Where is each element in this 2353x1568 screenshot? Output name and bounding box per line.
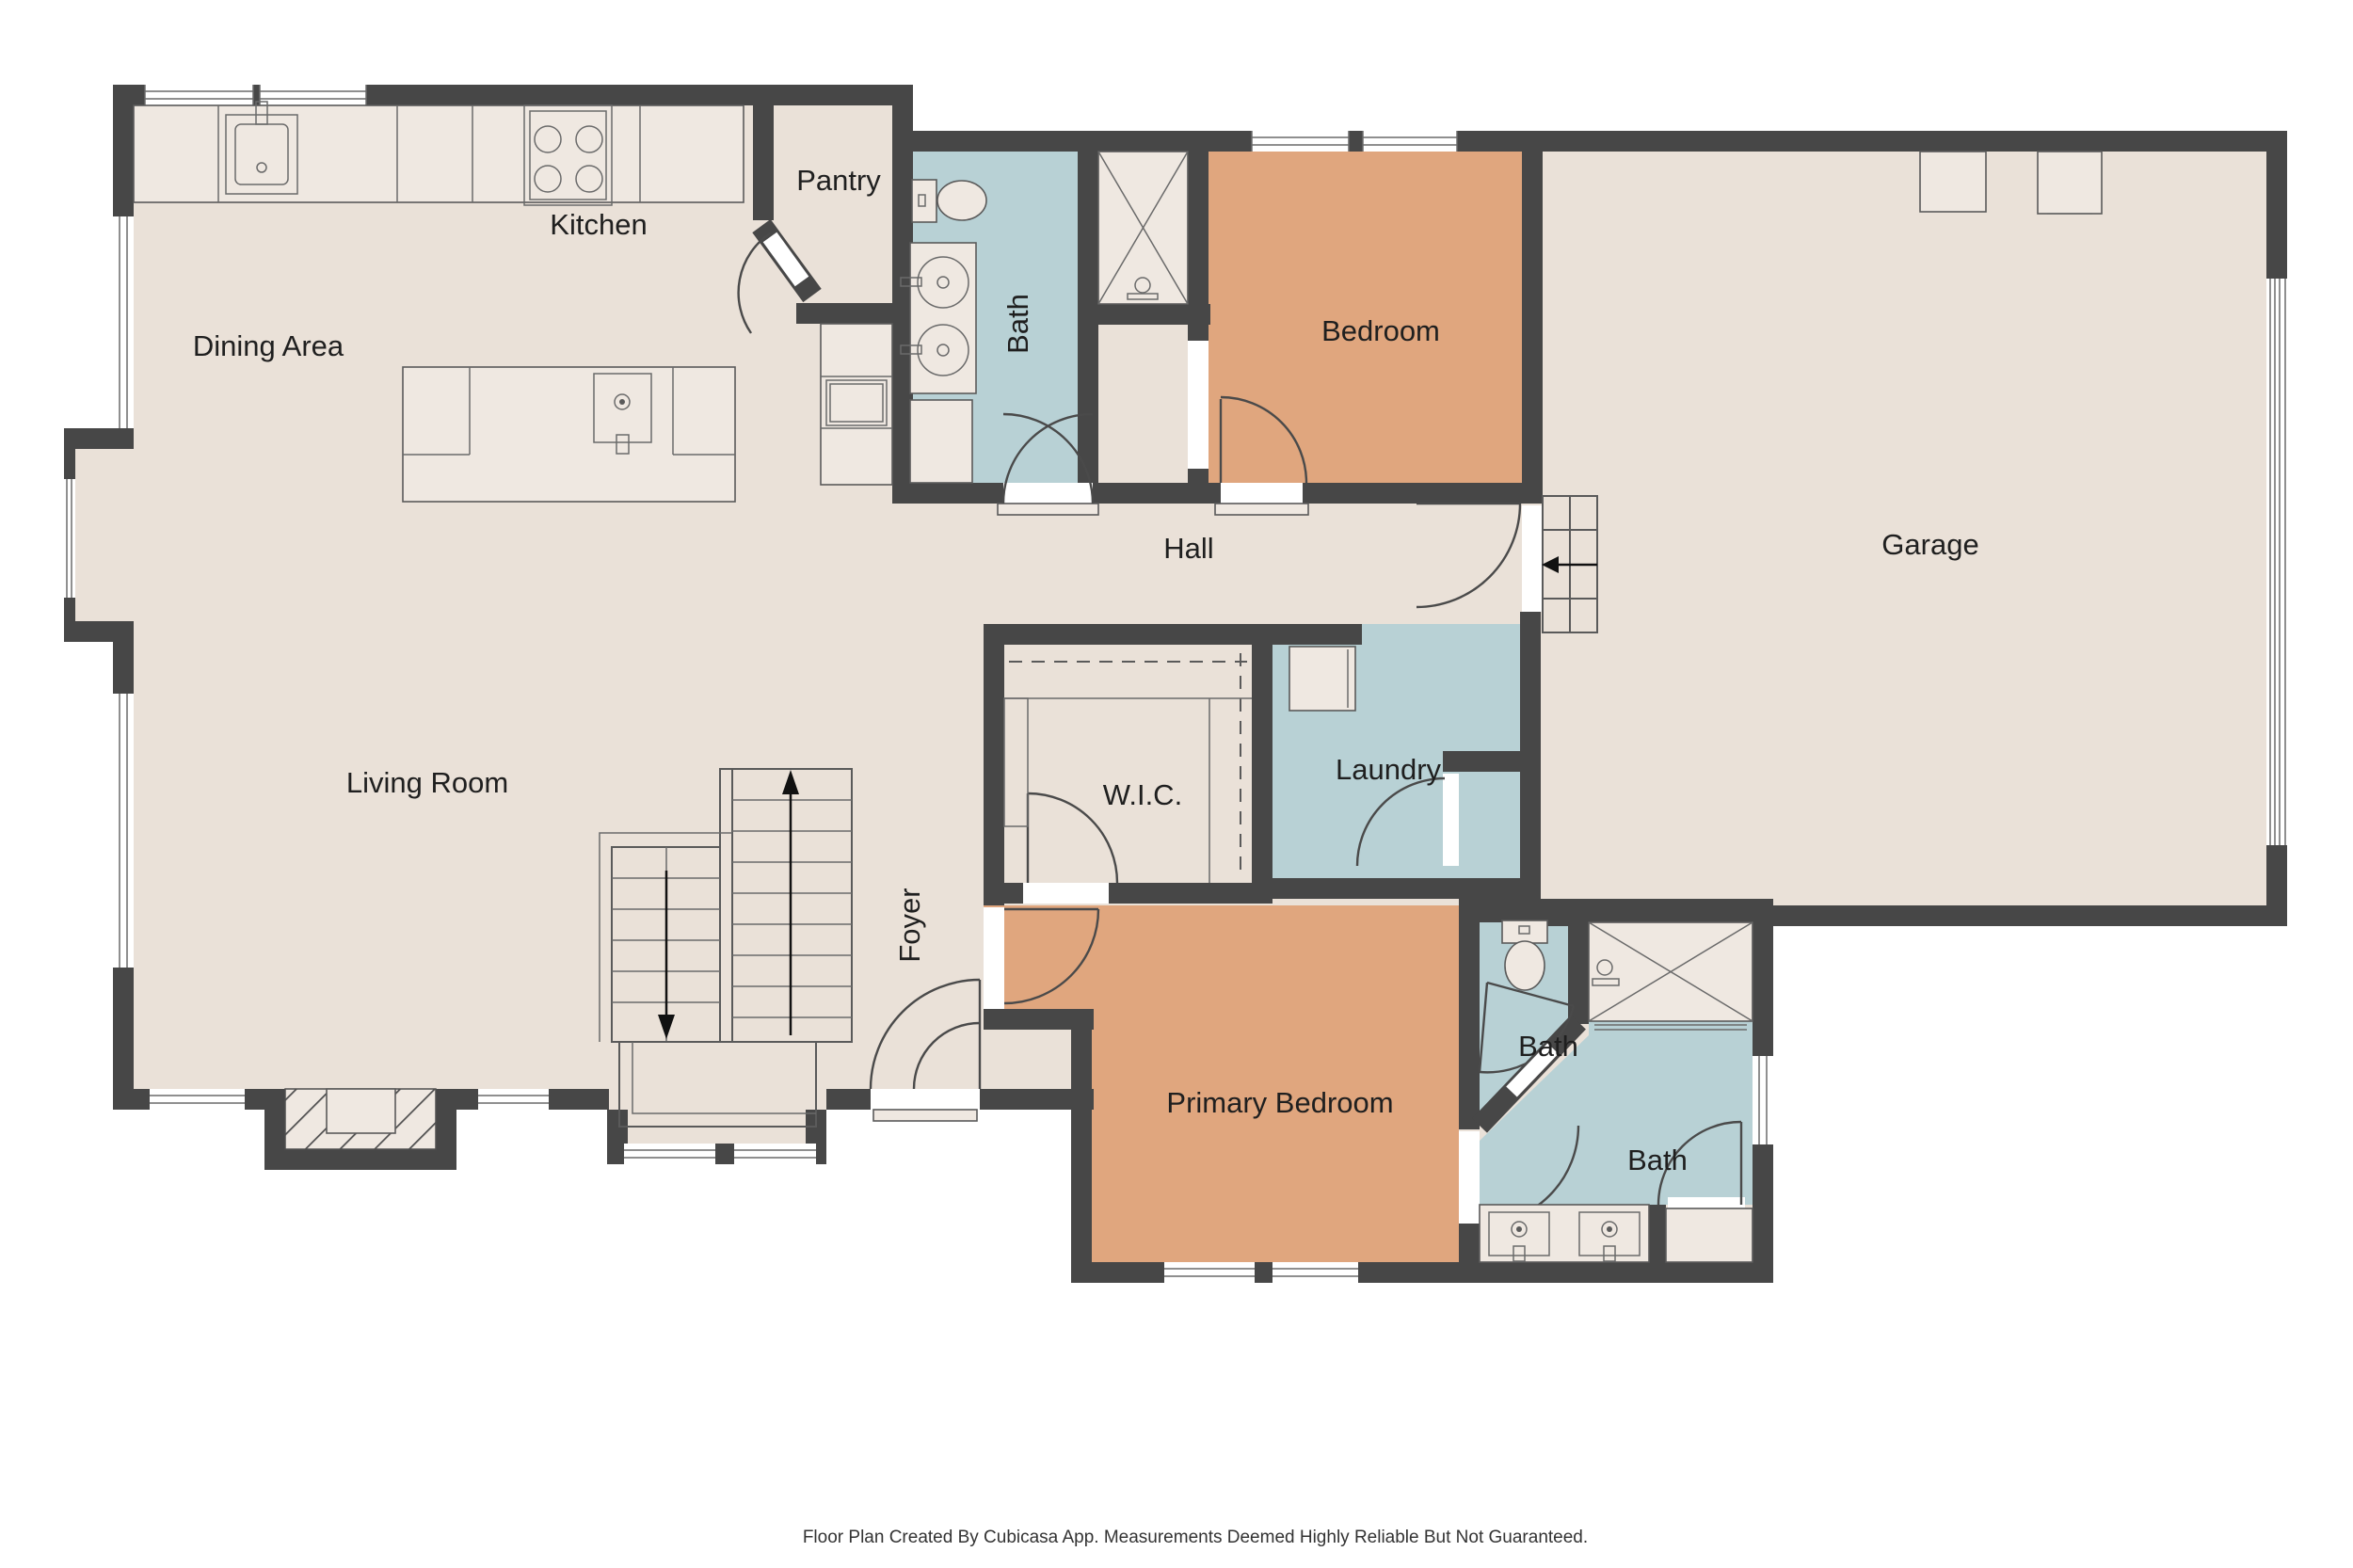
floorplan-canvas: Kitchen Dining Area Pantry Bath Bedroom … bbox=[0, 0, 2353, 1568]
door-threshold bbox=[1023, 883, 1109, 904]
washer-icon bbox=[1289, 647, 1355, 711]
door-threshold bbox=[1522, 505, 1543, 612]
room-label-hall: Hall bbox=[1163, 532, 1213, 565]
window bbox=[1753, 1056, 1773, 1144]
window bbox=[1164, 1262, 1255, 1283]
kitchen-island bbox=[403, 367, 735, 502]
room-label-bath-primary: Bath bbox=[1627, 1144, 1688, 1176]
wall-segment bbox=[1091, 483, 1223, 504]
wall-segment bbox=[816, 1144, 826, 1164]
kitchen-counter bbox=[134, 102, 744, 205]
wall-segment bbox=[1568, 922, 1589, 1024]
door-threshold bbox=[1459, 1131, 1480, 1224]
floorplan-page: Kitchen Dining Area Pantry Bath Bedroom … bbox=[0, 0, 2353, 1568]
room-label-garage: Garage bbox=[1881, 528, 1978, 561]
wall-segment bbox=[113, 1089, 150, 1110]
wall-segment bbox=[245, 1089, 266, 1110]
wall-segment bbox=[1443, 751, 1541, 772]
wall-segment bbox=[1459, 899, 1773, 922]
wall-segment bbox=[1252, 878, 1541, 899]
window bbox=[1252, 131, 1349, 152]
wall-segment bbox=[64, 449, 75, 479]
wall-segment bbox=[64, 621, 134, 642]
room-label-pantry: Pantry bbox=[796, 164, 881, 197]
wall-segment bbox=[984, 624, 1362, 645]
shower-icon bbox=[1589, 922, 1753, 1030]
wall-segment bbox=[549, 1089, 609, 1110]
wall-segment bbox=[455, 1089, 478, 1110]
wall-segment bbox=[1188, 152, 1209, 325]
door-threshold bbox=[1668, 1197, 1745, 1208]
wall-segment bbox=[1071, 1009, 1092, 1283]
vanity-double-sink bbox=[901, 243, 976, 393]
wall-segment bbox=[1255, 1262, 1273, 1283]
wall-segment bbox=[2266, 845, 2287, 926]
toilet-icon bbox=[1502, 920, 1547, 990]
door-step bbox=[873, 1110, 977, 1121]
wall-segment bbox=[753, 105, 774, 220]
window bbox=[624, 1144, 715, 1164]
garage-appliance bbox=[1920, 152, 1986, 212]
door-threshold bbox=[1188, 341, 1209, 469]
fireplace bbox=[285, 1089, 436, 1149]
toilet-icon bbox=[912, 180, 986, 222]
room-label-bedroom: Bedroom bbox=[1321, 314, 1440, 347]
wall-segment bbox=[113, 642, 134, 694]
room-label-primary-bedroom: Primary Bedroom bbox=[1166, 1086, 1393, 1119]
door-threshold bbox=[1003, 483, 1093, 504]
room-label-wic: W.I.C. bbox=[1103, 778, 1182, 811]
shower-icon bbox=[1098, 152, 1188, 304]
vanity-double-sink bbox=[1480, 1205, 1649, 1262]
wall-segment bbox=[1252, 624, 1273, 880]
wall-segment bbox=[1109, 883, 1273, 904]
garage-appliance bbox=[2038, 152, 2102, 214]
bath-cabinet bbox=[910, 400, 972, 483]
wall-segment bbox=[892, 483, 1005, 504]
wall-segment bbox=[2266, 131, 2287, 279]
wall-segment bbox=[715, 1144, 734, 1164]
door-threshold bbox=[871, 1089, 980, 1110]
wall-segment bbox=[64, 428, 134, 449]
window bbox=[113, 216, 134, 428]
room-label-living-room: Living Room bbox=[346, 766, 508, 799]
wall-segment bbox=[826, 1089, 872, 1110]
wall-segment bbox=[1358, 1262, 1773, 1283]
wall-segment bbox=[984, 645, 1004, 905]
door-sill bbox=[998, 504, 1098, 515]
wall-segment bbox=[113, 85, 134, 216]
wall-segment bbox=[984, 883, 1023, 904]
wall-segment bbox=[1522, 152, 1543, 504]
wall-segment bbox=[607, 1144, 624, 1164]
door-threshold bbox=[1443, 774, 1459, 866]
bath-closet bbox=[1666, 1208, 1753, 1262]
footer-disclaimer: Floor Plan Created By Cubicasa App. Meas… bbox=[803, 1528, 1588, 1547]
wall-segment bbox=[1071, 1262, 1164, 1283]
wall-segment bbox=[113, 968, 134, 1110]
fireplace-wall bbox=[264, 1149, 456, 1170]
wall-segment bbox=[1649, 1205, 1666, 1262]
wall-segment bbox=[1188, 469, 1209, 483]
window bbox=[260, 85, 366, 105]
wall-segment bbox=[1188, 325, 1209, 341]
wall-segment bbox=[1753, 922, 1773, 1056]
window bbox=[64, 479, 75, 598]
door-sill bbox=[1215, 504, 1308, 515]
window bbox=[734, 1144, 816, 1164]
wall-segment bbox=[1303, 483, 1543, 504]
room-label-bath-wc: Bath bbox=[1518, 1030, 1578, 1063]
garage-door bbox=[2266, 279, 2287, 845]
wall-segment bbox=[1753, 1144, 1773, 1283]
window bbox=[145, 85, 253, 105]
window bbox=[113, 694, 134, 968]
fireplace-firebox bbox=[327, 1089, 395, 1133]
window bbox=[478, 1089, 549, 1110]
window bbox=[150, 1089, 245, 1110]
wall-segment bbox=[892, 131, 2287, 152]
room-label-kitchen: Kitchen bbox=[550, 208, 647, 241]
room-label-laundry: Laundry bbox=[1336, 753, 1442, 786]
room-label-bath-top: Bath bbox=[1001, 294, 1034, 354]
window bbox=[1363, 131, 1457, 152]
window bbox=[1273, 1262, 1358, 1283]
door-threshold bbox=[984, 907, 1004, 1009]
kitchen-cabinets bbox=[821, 324, 892, 485]
wall-segment bbox=[1459, 899, 1480, 1129]
room-label-dining-area: Dining Area bbox=[193, 329, 344, 362]
door-threshold bbox=[1221, 483, 1303, 504]
room-label-foyer: Foyer bbox=[893, 888, 926, 962]
